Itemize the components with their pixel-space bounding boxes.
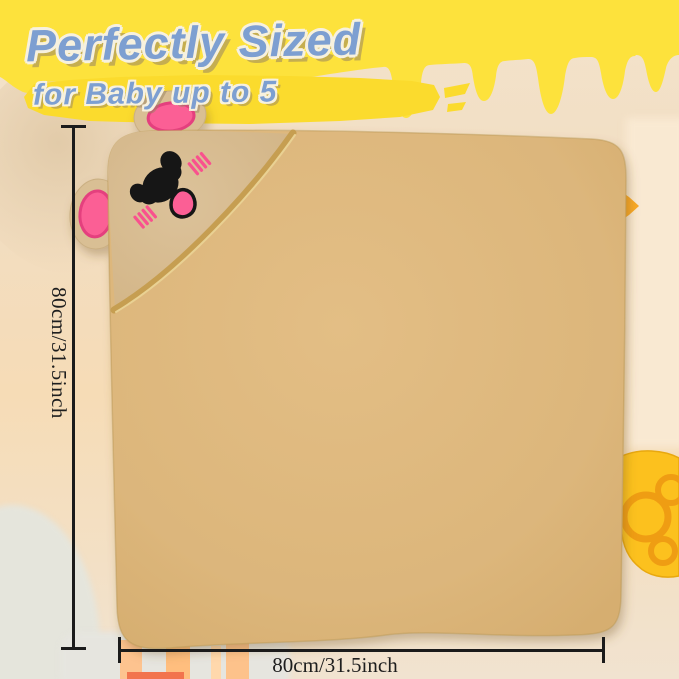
product-image: Perfectly Sized for Baby up to 5 80cm/31…: [0, 0, 679, 679]
dimension-cap-left: [118, 637, 121, 663]
banner-title: Perfectly Sized: [26, 12, 447, 73]
cheese-icon: [620, 451, 679, 577]
dimension-line-horizontal: [119, 649, 605, 652]
dimension-line-vertical: [72, 126, 75, 650]
paint-stripe: [226, 640, 249, 679]
height-dimension-label: 80cm/31.5inch: [46, 287, 71, 419]
dimension-cap-bottom: [61, 647, 86, 650]
dimension-cap-right: [602, 637, 605, 663]
width-dimension-label: 80cm/31.5inch: [250, 653, 420, 678]
banner-subtitle: for Baby up to 5: [33, 73, 433, 113]
dimension-cap-top: [61, 125, 86, 128]
paint-strip-red: [127, 672, 184, 679]
bear-mouth: [171, 190, 195, 217]
